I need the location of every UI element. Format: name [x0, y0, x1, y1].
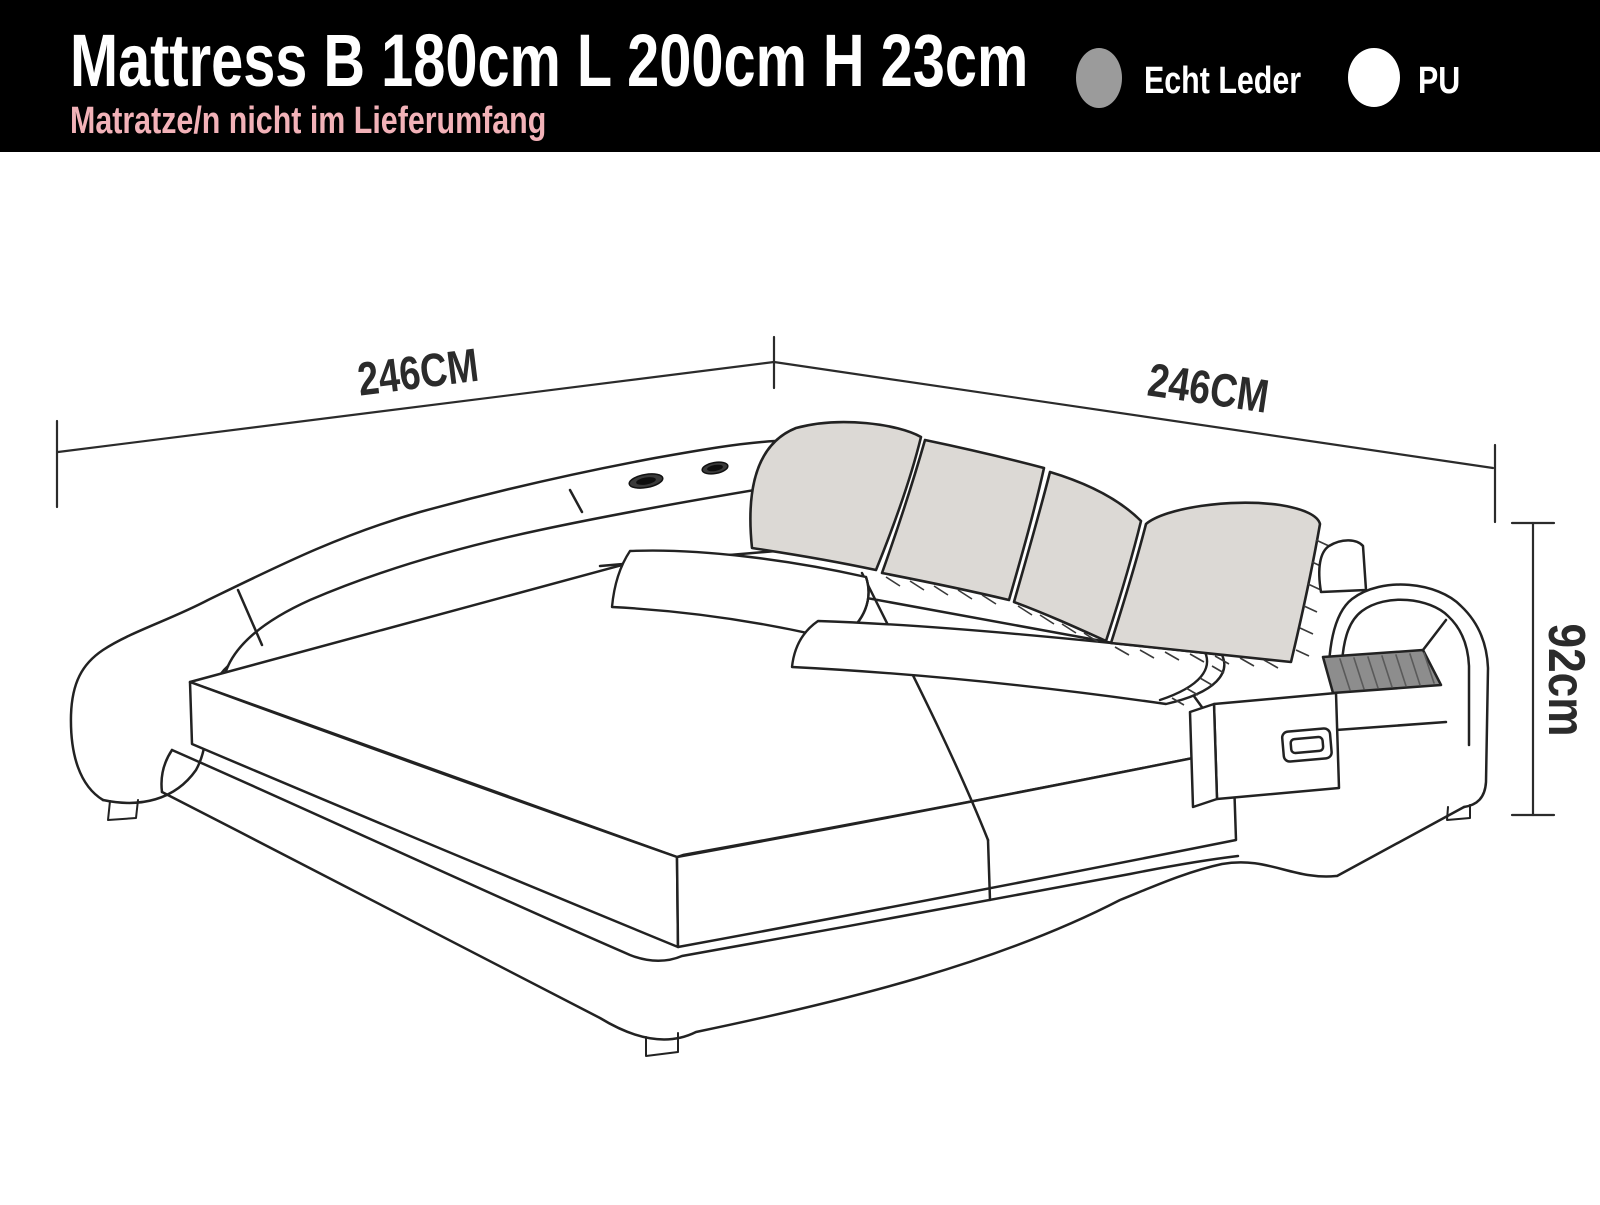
nightstand-right-panel	[1329, 585, 1488, 876]
pu-swatch-icon	[1348, 48, 1400, 107]
drawing-area: 246CM 246CM 92cm	[0, 152, 1600, 1200]
spotlight-icons	[628, 460, 729, 490]
bed-dimension-drawing: 246CM 246CM 92cm	[0, 152, 1600, 1200]
material-legend: Echt Leder PU	[0, 0, 1600, 152]
echt-leder-label: Echt Leder	[1144, 60, 1301, 103]
drawer-handle	[1282, 728, 1332, 762]
platform-foot	[646, 1033, 678, 1056]
header-bar: Mattress B 180cm L 200cm H 23cm Matratze…	[0, 0, 1600, 152]
headboard-end-block	[1319, 540, 1366, 592]
dimension-label-right-width: 246CM	[1144, 354, 1272, 424]
spotlight-icon	[628, 472, 664, 491]
pu-label: PU	[1418, 60, 1460, 103]
echt-leder-swatch-icon	[1076, 48, 1122, 108]
dimension-label-height: 92cm	[1537, 623, 1595, 736]
cushion-4	[1111, 503, 1320, 662]
spotlight-icon	[701, 460, 729, 475]
dimension-label-left-width: 246CM	[355, 339, 482, 407]
